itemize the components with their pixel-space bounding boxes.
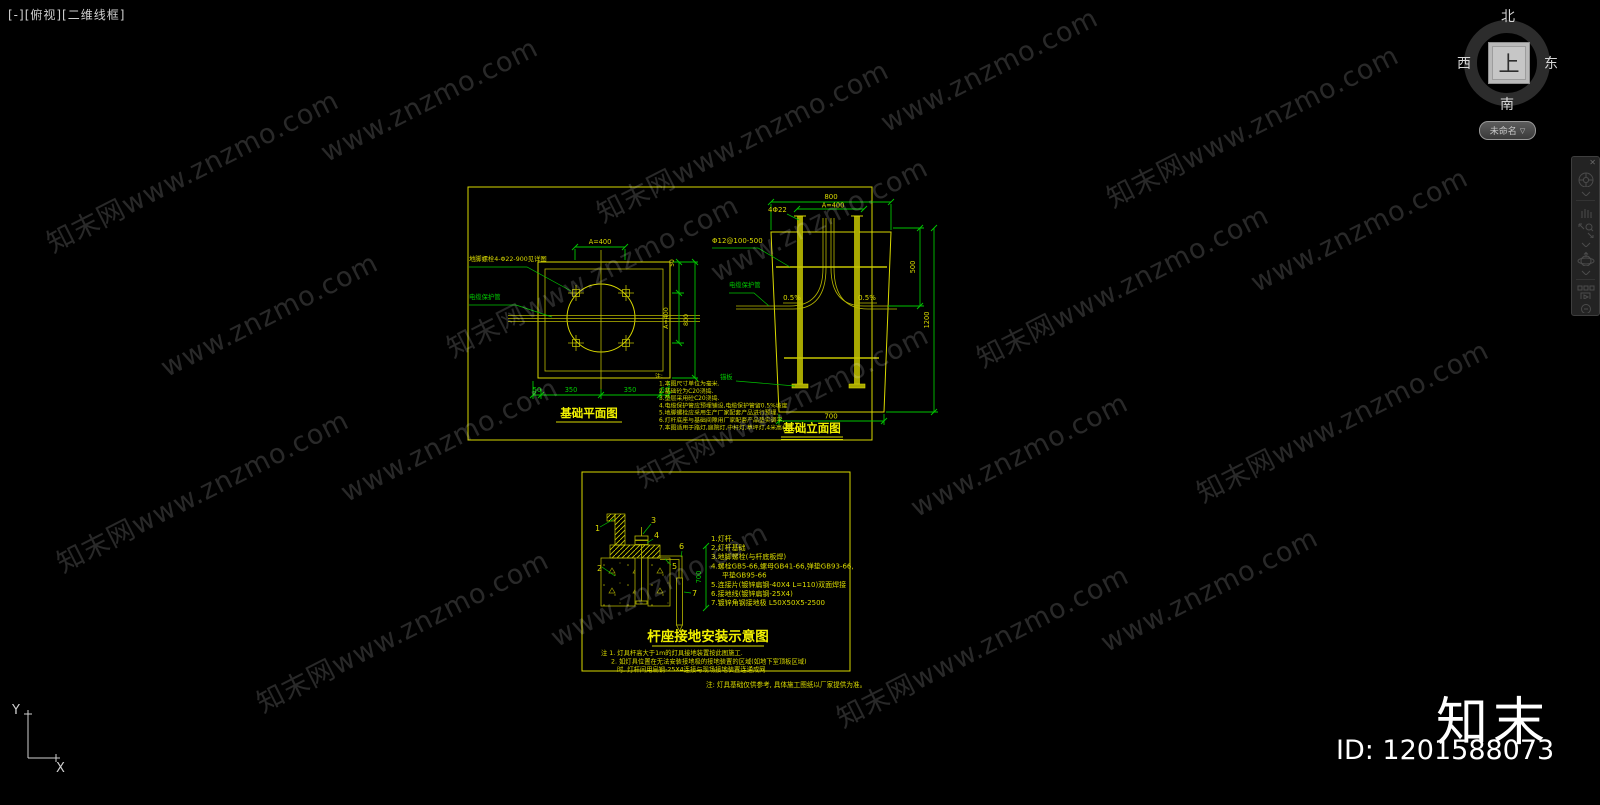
plan-dim-b2: 350: [624, 386, 637, 394]
elev-dim-500: 500: [909, 261, 917, 274]
plan-label-bolt: 地脚螺栓4-Φ22-900见详图: [469, 254, 547, 263]
navigation-bar: ✕: [1571, 156, 1600, 316]
chevron-down-icon[interactable]: [1580, 270, 1592, 275]
note-line: 7.本图适用于路灯,庭院灯,中杆灯,草坪灯,4米高杆灯.: [659, 423, 796, 431]
plan-label-conduit: 电缆保护管: [469, 292, 500, 301]
ucs-icon: Y X: [0, 690, 90, 800]
plan-title: 基础平面图: [559, 406, 618, 420]
grounding-note: 2. 如灯具位置在无法安装接地极的接地装置的区域(如地下室顶板区域): [611, 657, 807, 666]
navigation-wheel-icon[interactable]: [1576, 170, 1596, 187]
legend-item: 7.镀锌角钢接地极 L50X50X5-2500: [711, 598, 825, 607]
plan-dim-b1: 350: [565, 386, 578, 394]
plan-dim-top: A=400: [589, 238, 612, 246]
viewcube-top-face[interactable]: 上: [1488, 42, 1530, 84]
legend-item: 1.灯杆.: [711, 534, 734, 543]
orbit-icon[interactable]: [1577, 251, 1595, 266]
note-line: 2.基础砼为C20浇捣.: [659, 387, 714, 395]
plan-dim-b0: 50: [533, 386, 541, 394]
note-line: 5.地脚螺栓应采用生产厂家配套产品进行预埋.: [659, 409, 779, 417]
callout-1: 1: [595, 524, 600, 533]
elev-dim-a400: A=400: [822, 202, 845, 210]
zoom-extents-icon[interactable]: [1577, 222, 1595, 237]
note-line: 1.本图尺寸单位为毫米.: [659, 380, 720, 388]
sheet1-foundation: A=400 50 350 350 50 50 A=400 800 地脚螺栓4-Φ…: [468, 187, 938, 440]
callout-5: 5: [672, 562, 677, 571]
viewcube-south[interactable]: 南: [1500, 94, 1514, 114]
legend-item: 平垫GB95-66: [722, 571, 767, 580]
sheet2-grounding: 1 2 3 4 5 6 7 700 1.灯杆. 2: [582, 472, 866, 689]
elev-label-rebar: Φ12@100-500: [712, 237, 763, 245]
legend-item: 5.连接片(镀锌扁钢-40X4 L=110)双面焊接: [711, 580, 846, 589]
legend-item: 4.螺栓GB5-66,螺母GB41-66,弹垫GB93-66,: [711, 562, 854, 571]
viewcube-top-label: 上: [1499, 48, 1520, 78]
image-id: ID: 1201588073: [1336, 735, 1554, 766]
viewcube-east[interactable]: 东: [1544, 53, 1558, 73]
sheet2-footnote: 注: 灯具基础仅供参考, 具体施工图纸以厂家提供为准。: [706, 680, 866, 689]
plan-dim-right-top: 50: [670, 259, 676, 267]
collapse-icon[interactable]: [1580, 303, 1592, 313]
callout-4: 4: [654, 531, 659, 540]
viewcube-menu-label: 未命名: [1490, 124, 1517, 137]
callout-2: 2: [597, 564, 602, 573]
callout-3: 3: [651, 516, 656, 525]
elev-dim-700: 700: [824, 413, 837, 421]
elev-dim-800: 800: [824, 193, 837, 201]
callout-6: 6: [679, 542, 684, 551]
elev-label-anchor: 锚板: [720, 372, 733, 381]
drawing-layer: A=400 50 350 350 50 50 A=400 800 地脚螺栓4-Φ…: [0, 0, 1600, 805]
close-icon[interactable]: ✕: [1589, 158, 1596, 168]
note-line: 4.电缆保护管应预埋铺设,电缆保护管留0.5%坡度: [659, 401, 788, 409]
chevron-down-icon[interactable]: [1580, 242, 1592, 247]
ucs-y-label: Y: [11, 703, 20, 718]
grounding-note: 注 1. 灯具杆高大于1m的灯具接地装置按此图施工.: [601, 648, 743, 657]
legend-item: 3.地脚螺栓(与杆底板焊): [711, 552, 786, 561]
grounding-note: 时, 灯杆间用扁钢-25X4连接与现场接地装置连通成网.: [617, 665, 768, 674]
elev-slope-right: 0.5%: [858, 294, 876, 302]
note-line: 6.灯杆底座与基础间隙用厂家配套产品垫实调平.: [659, 416, 784, 424]
grounding-detail-drawing: 1 2 3 4 5 6 7 700: [595, 514, 709, 631]
cad-canvas: [-][俯视][二维线框]: [0, 0, 1600, 805]
detail-dim-700: 700: [695, 571, 703, 584]
plan-dim-right-outer: 800: [683, 314, 690, 326]
plan-dim-right-inner: A=400: [663, 307, 670, 329]
elev-label-conduit: 电缆保护管: [729, 280, 760, 289]
pan-hand-icon[interactable]: [1577, 205, 1595, 218]
grounding-title: 杆座接地安装示意图: [647, 628, 769, 645]
note-line: 3.垫层采用砼C20浇捣.: [659, 394, 719, 402]
elev-slope-left: 0.5%: [783, 294, 801, 302]
legend-item: 6.接地线(镀锌扁钢-25X4): [711, 589, 793, 598]
showmotion-icon[interactable]: [1576, 284, 1596, 299]
legend-item: 2.灯杆基础: [711, 543, 746, 552]
ucs-x-label: X: [56, 761, 65, 776]
viewcube-north[interactable]: 北: [1501, 6, 1515, 26]
viewcube-menu-button[interactable]: 未命名 ▽: [1479, 121, 1536, 140]
callout-7: 7: [692, 589, 697, 598]
grounding-legend: 1.灯杆. 2.灯杆基础 3.地脚螺栓(与杆底板焊) 4.螺栓GB5-66,螺母…: [711, 534, 854, 607]
chevron-down-icon[interactable]: [1580, 191, 1592, 196]
notes-heading: 注:: [655, 372, 663, 380]
elev-dim-1200: 1200: [923, 312, 931, 329]
elev-label-4phi22: 4Φ22: [768, 206, 787, 214]
viewcube-west[interactable]: 西: [1457, 53, 1471, 73]
chevron-down-icon: ▽: [1520, 127, 1525, 135]
